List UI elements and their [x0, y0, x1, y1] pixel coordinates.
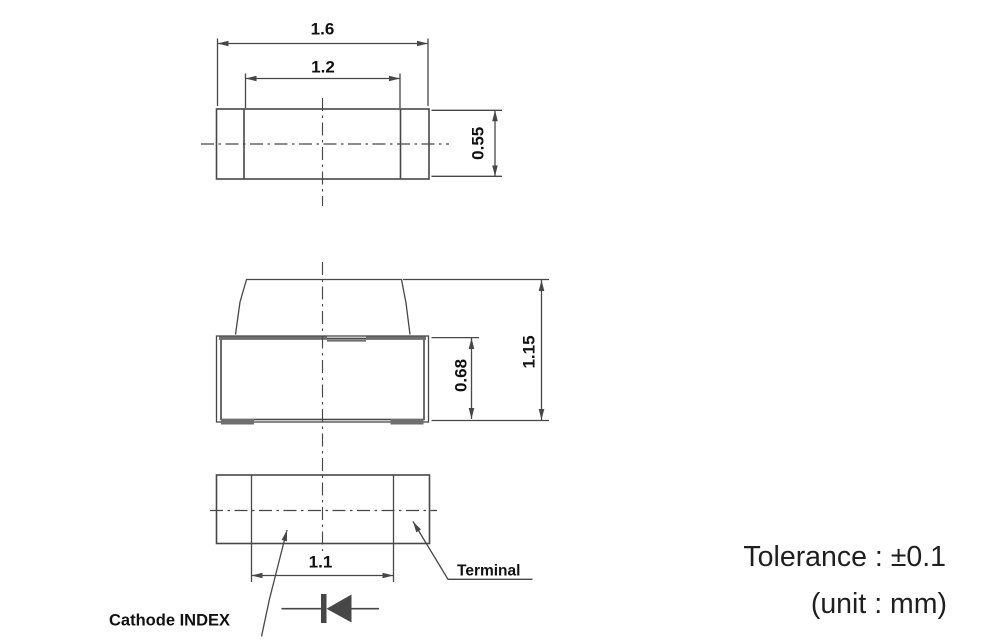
terminal-callout: Terminal: [413, 522, 533, 580]
dim-label-side-body-height: 0.68: [452, 359, 471, 392]
package-outline-drawing: 1.6 1.2 0.55 0.68 1.15: [0, 0, 981, 640]
dim-label-top-outer-width: 1.6: [311, 20, 335, 39]
side-view-terminal-tab-right: [391, 419, 424, 425]
cathode-index-callout: Cathode INDEX: [109, 530, 287, 637]
side-view-terminal-tab-left: [221, 419, 254, 425]
top-view: [201, 98, 449, 206]
tolerance-note: Tolerance : ±0.1: [743, 541, 946, 573]
diode-cathode-bar: [321, 594, 327, 623]
dim-label-top-inner-width: 1.2: [311, 58, 335, 77]
dim-label-top-depth: 0.55: [469, 127, 488, 160]
technical-drawing-page: 1.6 1.2 0.55 0.68 1.15: [0, 0, 981, 640]
cathode-index-leader-line: [262, 530, 288, 637]
dim-label-bottom-terminal-span: 1.1: [309, 553, 333, 572]
terminal-label: Terminal: [457, 563, 520, 580]
dimension-bottom-terminal-span: 1.1: [252, 553, 394, 576]
diode-triangle: [327, 595, 352, 623]
cathode-index-label: Cathode INDEX: [109, 612, 230, 630]
dimension-side-total-height: 1.15: [403, 280, 549, 421]
dimension-side-body-height: 0.68: [432, 338, 480, 419]
unit-note: (unit : mm): [811, 588, 947, 620]
dimension-top-depth: 0.55: [432, 110, 503, 176]
side-view: [217, 262, 429, 551]
notes: Tolerance : ±0.1 (unit : mm): [743, 541, 947, 620]
diode-icon: [282, 594, 380, 623]
dim-label-side-total-height: 1.15: [520, 335, 539, 368]
